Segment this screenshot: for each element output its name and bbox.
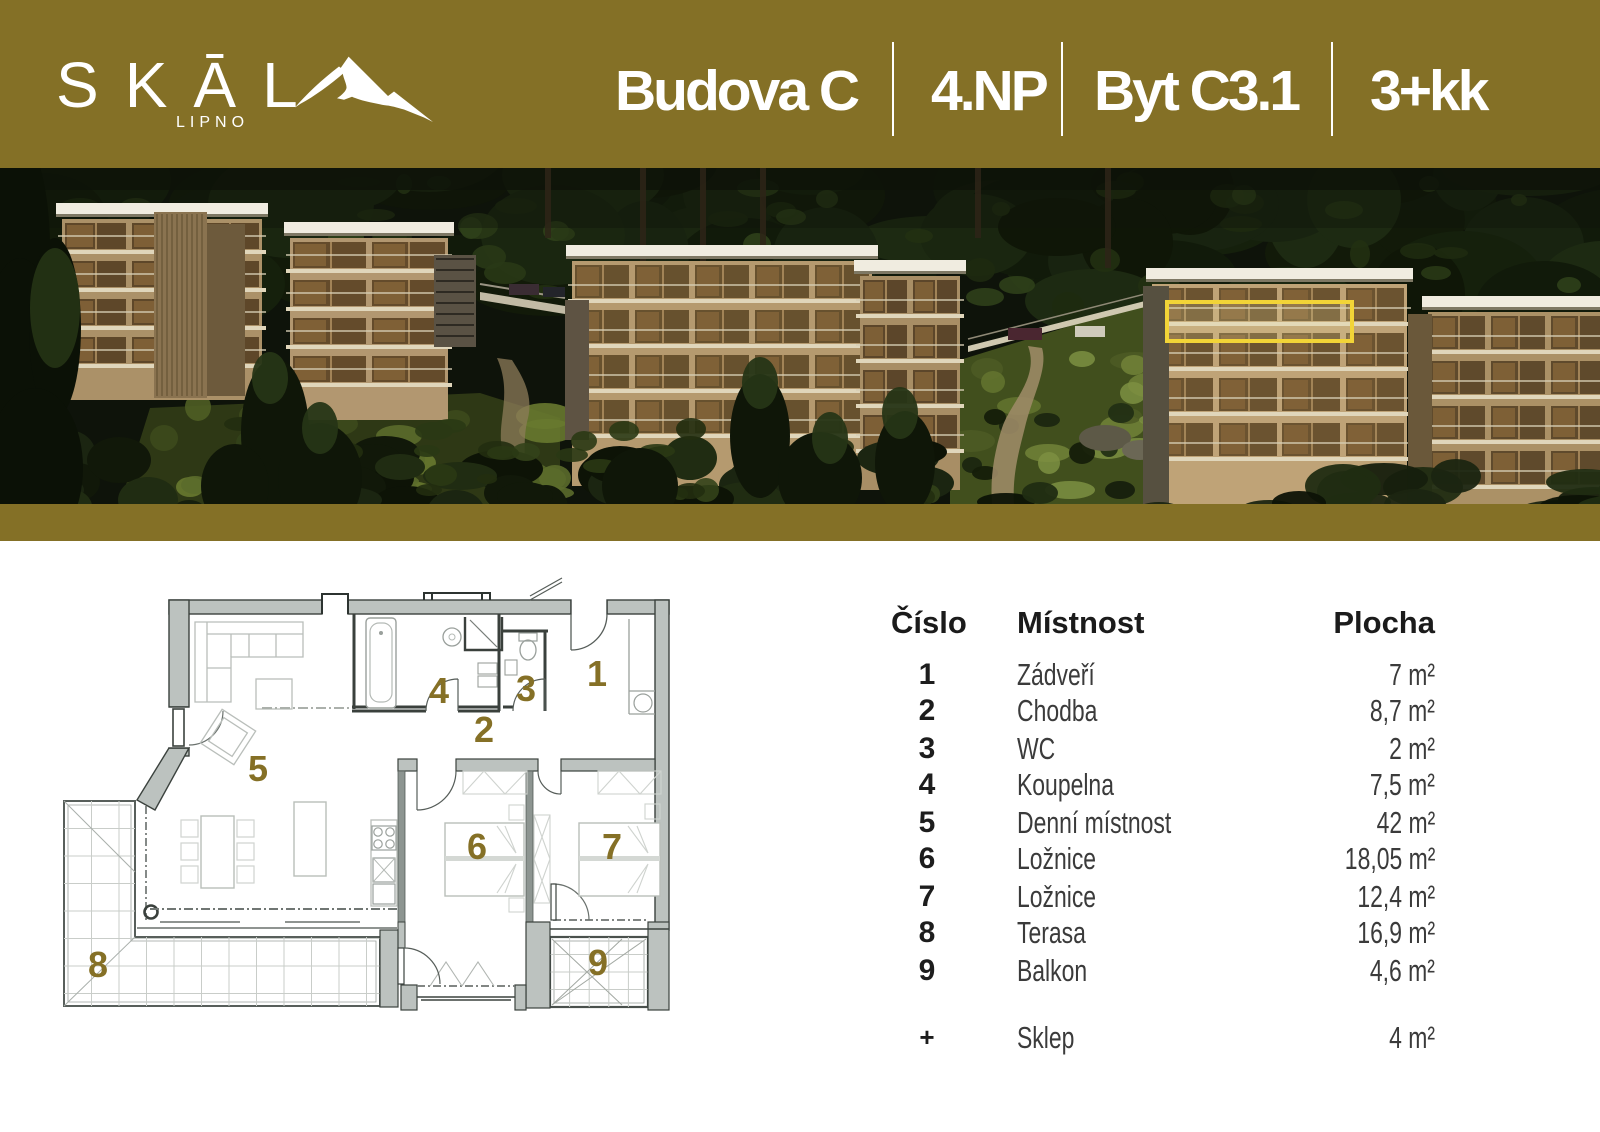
svg-text:SKĀL: SKĀL — [56, 49, 324, 121]
svg-text:7: 7 — [602, 826, 622, 867]
svg-text:6: 6 — [467, 826, 487, 867]
svg-text:LIPNO: LIPNO — [176, 114, 249, 131]
svg-text:9: 9 — [588, 942, 608, 983]
svg-text:8: 8 — [88, 944, 108, 985]
svg-text:2: 2 — [474, 709, 494, 750]
svg-text:1: 1 — [587, 653, 607, 694]
svg-text:5: 5 — [248, 748, 268, 789]
svg-text:4: 4 — [429, 670, 449, 711]
svg-text:3: 3 — [516, 668, 536, 709]
